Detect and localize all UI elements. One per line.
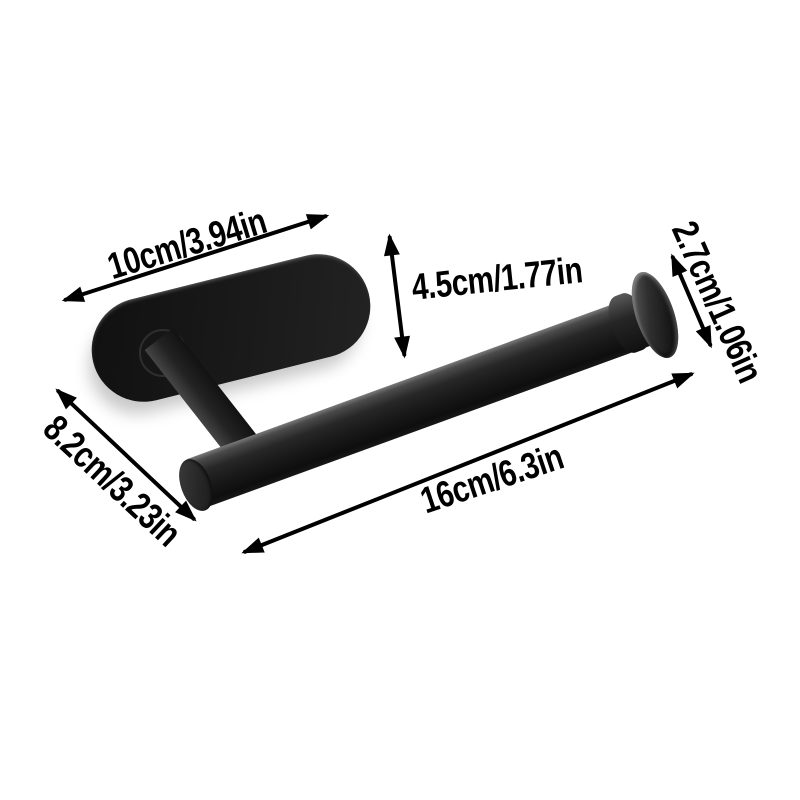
arrowhead-left-icon — [238, 537, 264, 560]
arrowhead-left-icon — [59, 286, 85, 308]
arrowhead-right-icon — [305, 207, 331, 229]
arrowhead-left-icon — [381, 232, 400, 256]
arrowhead-right-icon — [394, 335, 413, 359]
arrowhead-left-icon — [50, 383, 77, 410]
dimension-drop-height-label: 4.5cm/1.77in — [410, 249, 585, 309]
dimension-plate-width-label: 8.2cm/3.23in — [35, 407, 189, 555]
dimension-flange-diameter-label: 2.7cm/1.06in — [663, 215, 771, 389]
dimension-bar-length-label: 16cm/6.3in — [415, 436, 568, 523]
arrowhead-right-icon — [671, 365, 697, 388]
dimension-drop-height-arrow — [387, 235, 406, 357]
product-dimension-diagram: 10cm/3.94in 4.5cm/1.77in 2.7cm/1.06in 8.… — [0, 0, 800, 800]
